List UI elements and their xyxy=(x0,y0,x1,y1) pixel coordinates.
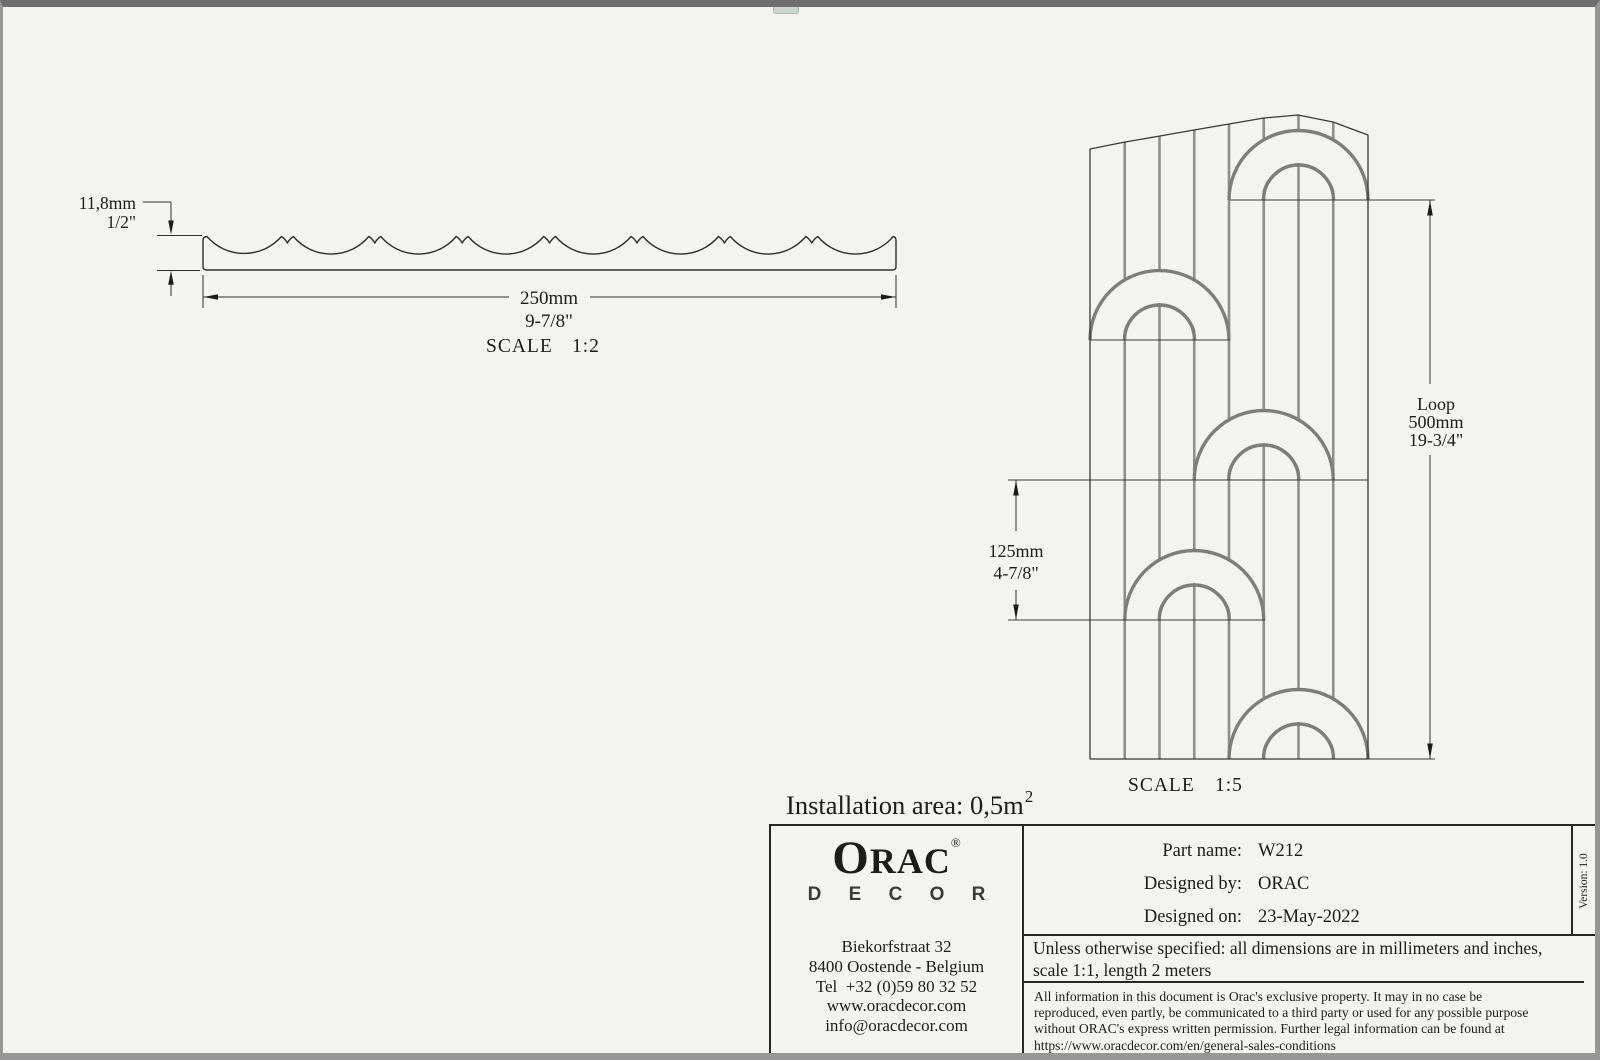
orac-logo: ORAC® xyxy=(771,831,1022,885)
logo-sub-brand: D E C O R xyxy=(771,884,1022,906)
profile-outline xyxy=(203,237,896,271)
window-top-tab xyxy=(773,6,799,14)
field-label: Designed by: xyxy=(1024,868,1242,901)
profile-scale-value: 1:2 xyxy=(572,336,600,357)
field-value: 23-May-2022 xyxy=(1258,901,1360,934)
title-block: ORAC® D E C O R Biekorfstraat 32 8400 Oo… xyxy=(769,824,1597,1055)
arrow-up-icon xyxy=(1427,201,1433,216)
arrow-down-icon xyxy=(1427,744,1433,759)
address-line: Tel +32 (0)59 80 32 52 xyxy=(771,977,1022,997)
registered-trademark-icon: ® xyxy=(951,835,961,850)
front-pattern-view: Loop 500mm 19-3/4" 125mm 4-7/8" SCALE 1:… xyxy=(988,95,1463,796)
field-value: ORAC xyxy=(1258,868,1309,901)
installation-area-superscript: 2 xyxy=(1025,787,1034,806)
company-address: Biekorfstraat 32 8400 Oostende - Belgium… xyxy=(771,937,1022,1036)
dim-width-mm: 250mm xyxy=(520,288,578,309)
front-scale-label: SCALE xyxy=(1128,775,1195,796)
arrow-right-icon xyxy=(881,294,896,300)
dim-loop-label: Loop xyxy=(1417,394,1455,414)
dim-height-mm: 11,8mm xyxy=(79,193,137,213)
general-notes-cell: Unless otherwise specified: all dimensio… xyxy=(1024,936,1584,983)
field-label: Designed on: xyxy=(1024,901,1242,934)
address-line: 8400 Oostende - Belgium xyxy=(771,957,1022,977)
version-cell: Version: 1.0 xyxy=(1571,826,1595,936)
installation-area-note: Installation area: 0,5m2 xyxy=(786,789,1032,821)
title-block-brand-cell: ORAC® D E C O R Biekorfstraat 32 8400 Oo… xyxy=(771,826,1024,1053)
field-label: Part name: xyxy=(1024,835,1242,868)
dim-repeat-mm: 125mm xyxy=(988,541,1043,561)
profile-section-view: 11,8mm 1/2" 250mm 9-7/8" SCALE 1:2 xyxy=(79,193,896,357)
legal-notice-cell: All information in this document is Orac… xyxy=(1024,983,1595,1054)
field-designed-by: Designed by: ORAC xyxy=(1024,868,1595,901)
field-value: W212 xyxy=(1258,835,1303,868)
logo-letter-o: O xyxy=(832,832,870,884)
field-part-name: Part name: W212 xyxy=(1024,835,1595,868)
profile-scale-label: SCALE xyxy=(486,336,553,357)
address-line: Biekorfstraat 32 xyxy=(771,937,1022,957)
arrow-down-icon xyxy=(168,221,174,235)
dim-loop-mm: 500mm xyxy=(1408,412,1463,432)
arrow-left-icon xyxy=(204,294,219,300)
arrow-down-icon xyxy=(1013,605,1019,620)
dim-height-in: 1/2" xyxy=(106,212,136,232)
dim-repeat-in: 4-7/8" xyxy=(993,563,1038,583)
drawing-sheet: 11,8mm 1/2" 250mm 9-7/8" SCALE 1:2 xyxy=(0,0,1600,1060)
title-block-info-cells: Part name: W212 Designed by: ORAC Design… xyxy=(1024,826,1595,1053)
arrow-up-icon xyxy=(168,271,174,285)
part-info-cell: Part name: W212 Designed by: ORAC Design… xyxy=(1024,826,1595,936)
dim-loop-in: 19-3/4" xyxy=(1409,430,1463,450)
version-label: Version: 1.0 xyxy=(1578,853,1590,909)
address-line[interactable]: info@oracdecor.com xyxy=(771,1016,1022,1036)
arch-baselines xyxy=(1008,200,1435,759)
arrow-up-icon xyxy=(1013,481,1019,496)
logo-letters-rac: RAC xyxy=(870,841,951,881)
field-designed-on: Designed on: 23-May-2022 xyxy=(1024,901,1595,934)
front-scale-value: 1:5 xyxy=(1215,775,1243,796)
installation-area-label: Installation area: xyxy=(786,790,963,820)
address-line[interactable]: www.oracdecor.com xyxy=(771,996,1022,1016)
dim-width-in: 9-7/8" xyxy=(525,311,573,332)
installation-area-value: 0,5m xyxy=(963,790,1023,820)
